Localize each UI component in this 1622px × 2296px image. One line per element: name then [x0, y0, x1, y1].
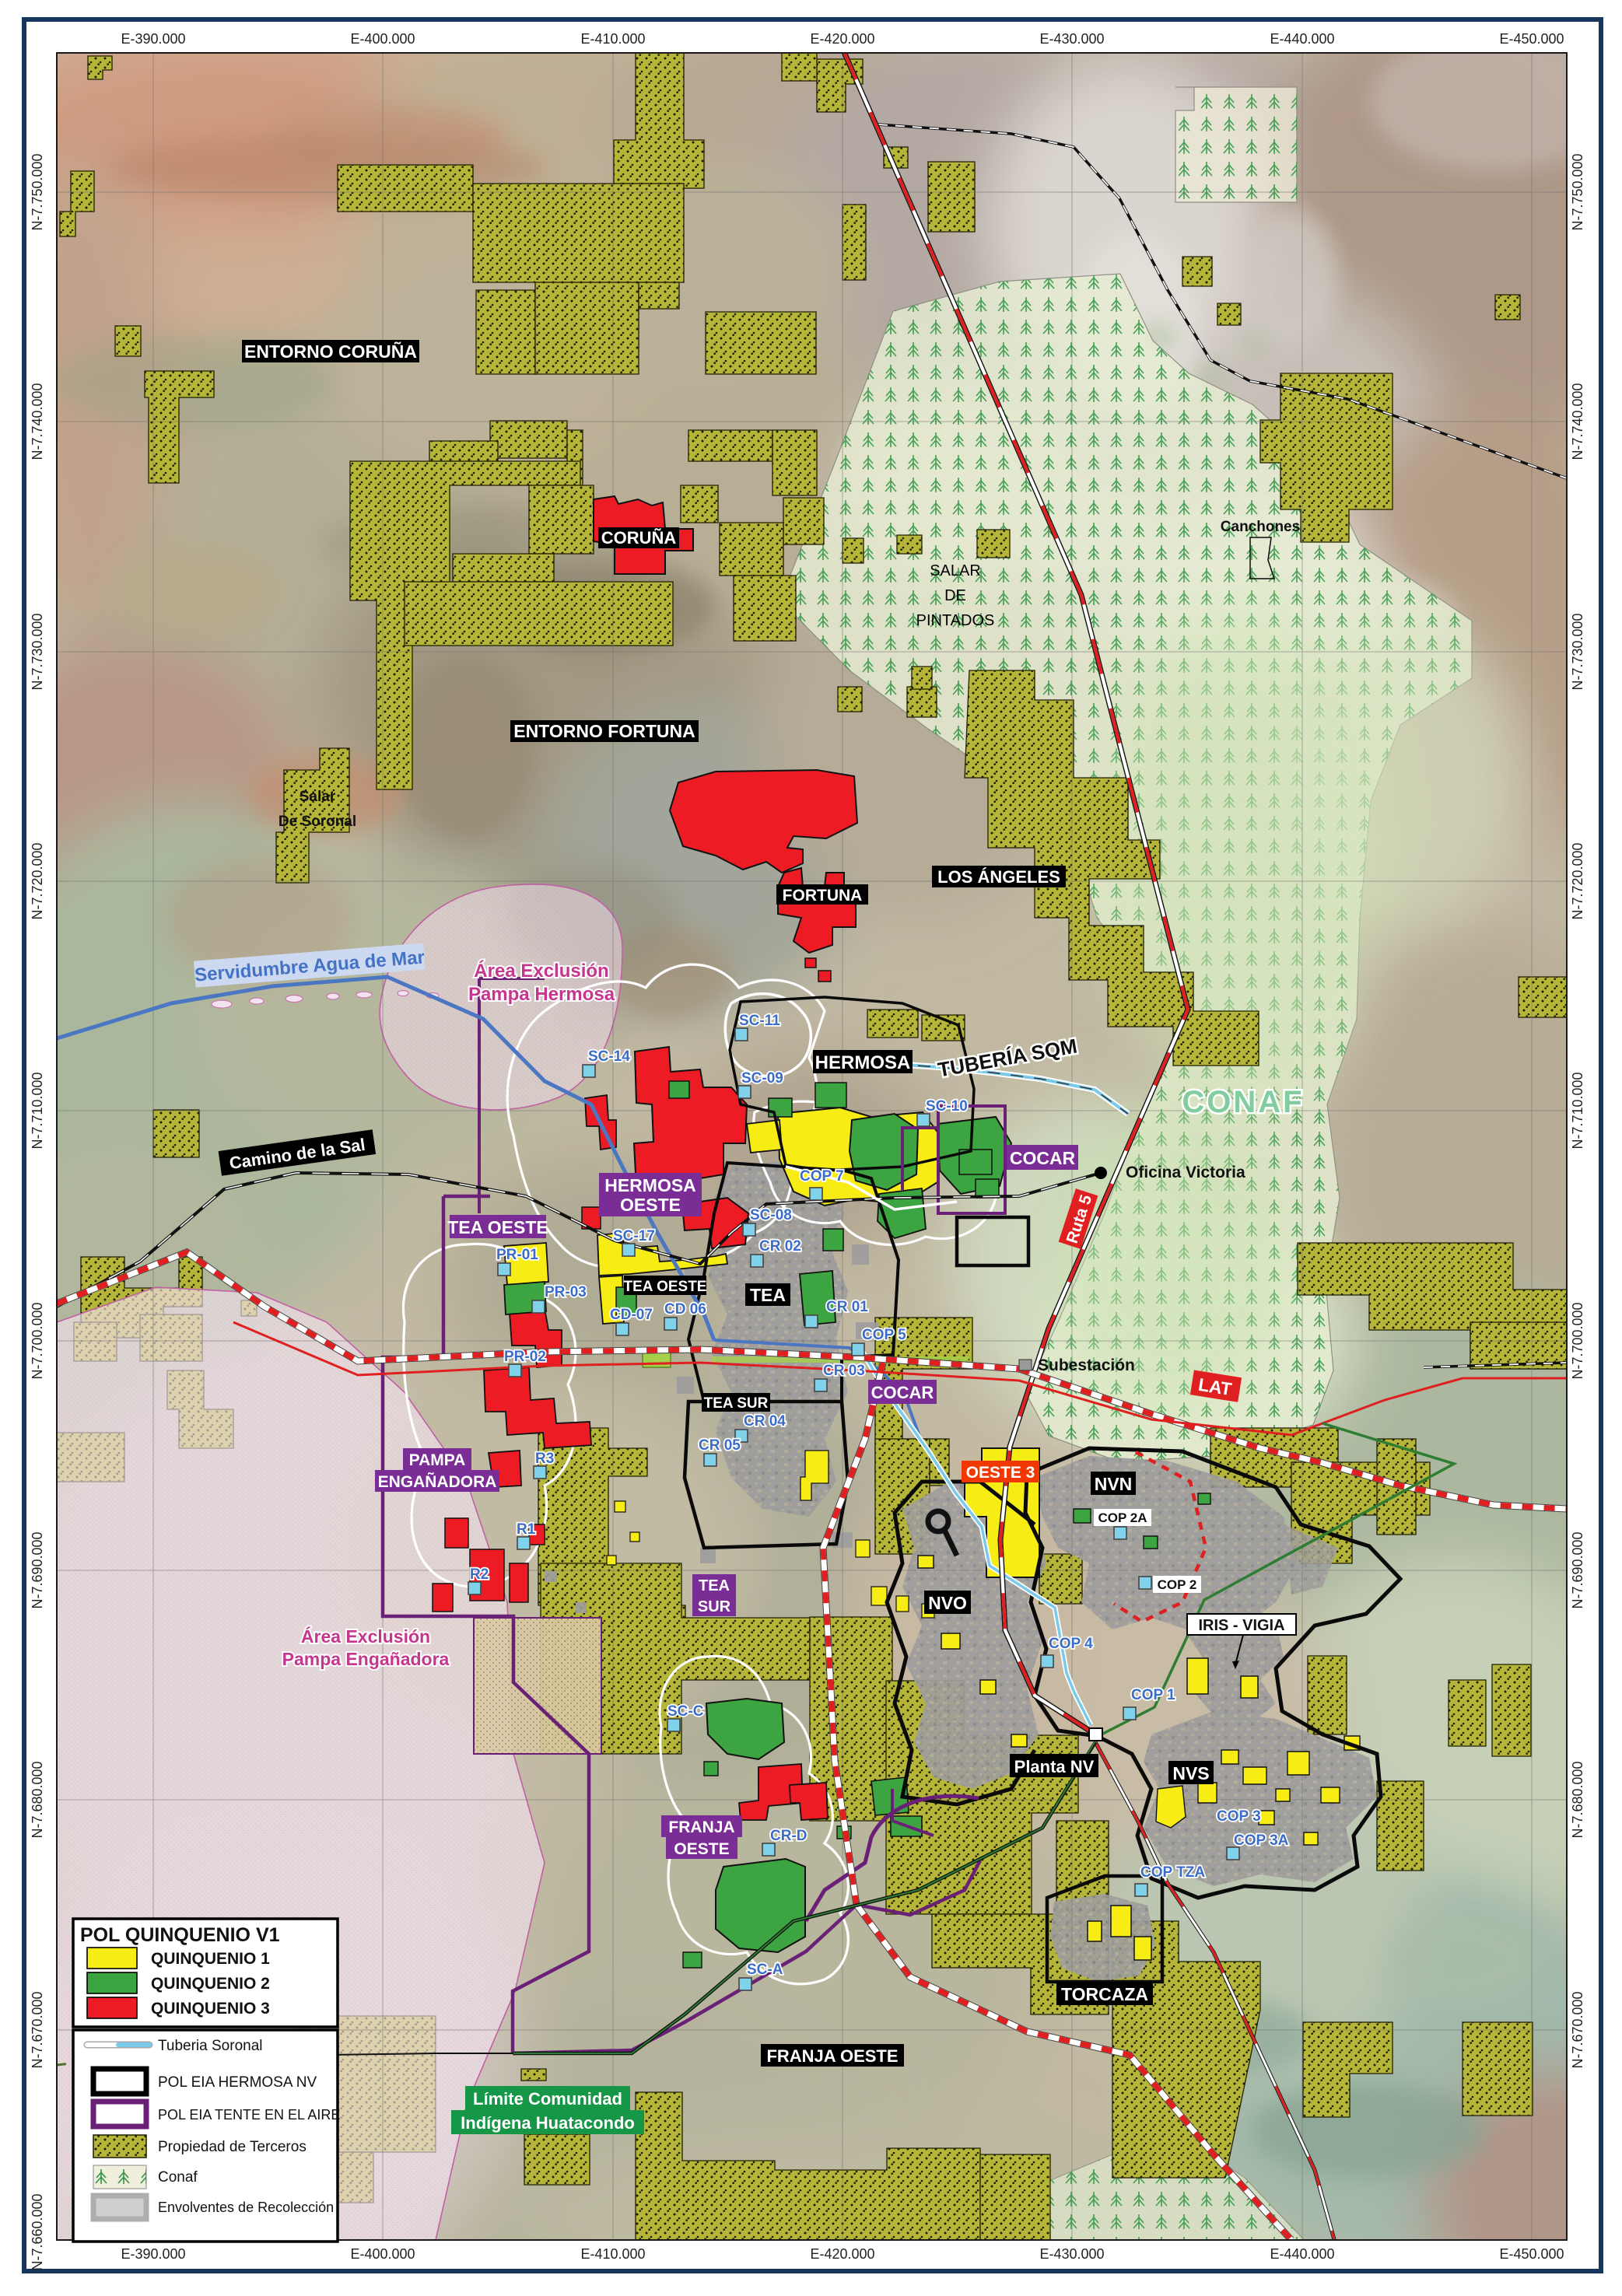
svg-text:SC-08: SC-08 [750, 1207, 792, 1223]
svg-text:POL EIA HERMOSA NV: POL EIA HERMOSA NV [158, 2074, 317, 2091]
svg-text:COP 4: COP 4 [1049, 1636, 1093, 1652]
svg-text:R2: R2 [470, 1566, 489, 1583]
svg-text:SUR: SUR [698, 1598, 731, 1615]
svg-text:COP 3A: COP 3A [1234, 1832, 1289, 1849]
svg-text:N-7.690.000: N-7.690.000 [1570, 1531, 1585, 1608]
svg-text:CR 05: CR 05 [699, 1437, 741, 1454]
svg-text:N-7.710.000: N-7.710.000 [30, 1072, 45, 1149]
svg-text:E-420.000: E-420.000 [810, 2246, 874, 2262]
svg-text:SC-A: SC-A [747, 1962, 783, 1978]
svg-text:N-7.670.000: N-7.670.000 [30, 1991, 45, 2068]
svg-text:SALAR: SALAR [930, 562, 981, 579]
svg-text:TEA OESTE: TEA OESTE [624, 1279, 707, 1295]
svg-text:N-7.730.000: N-7.730.000 [1570, 613, 1585, 690]
svg-text:Subestación: Subestación [1038, 1356, 1135, 1374]
svg-text:LOS ÁNGELES: LOS ÁNGELES [937, 867, 1060, 887]
svg-text:NVO: NVO [928, 1593, 967, 1613]
svg-text:De Soronal: De Soronal [279, 814, 356, 830]
svg-text:COP 7: COP 7 [800, 1168, 844, 1185]
svg-text:COCAR: COCAR [1010, 1148, 1076, 1168]
svg-text:FRANJA OESTE: FRANJA OESTE [766, 2046, 898, 2066]
svg-text:COCAR: COCAR [871, 1383, 934, 1402]
svg-text:TEA: TEA [699, 1577, 730, 1594]
svg-text:N-7.720.000: N-7.720.000 [1570, 842, 1585, 919]
svg-text:E-450.000: E-450.000 [1499, 2246, 1564, 2262]
svg-text:Indígena Huatacondo: Indígena Huatacondo [461, 2113, 635, 2133]
svg-text:E-390.000: E-390.000 [121, 2246, 185, 2262]
svg-text:CR 04: CR 04 [744, 1413, 786, 1430]
svg-text:E-410.000: E-410.000 [580, 2246, 645, 2262]
svg-text:CONAF: CONAF [1182, 1085, 1304, 1119]
svg-text:Pampa Engañadora: Pampa Engañadora [282, 1649, 450, 1669]
svg-text:PR-01: PR-01 [496, 1247, 538, 1263]
svg-text:N-7.660.000: N-7.660.000 [30, 2193, 45, 2270]
svg-text:E-410.000: E-410.000 [580, 31, 645, 47]
svg-text:CR-D: CR-D [770, 1828, 807, 1844]
svg-text:PR-02: PR-02 [504, 1349, 546, 1365]
svg-text:FRANJA: FRANJA [668, 1818, 734, 1836]
svg-text:ENTORNO FORTUNA: ENTORNO FORTUNA [513, 721, 695, 741]
svg-text:QUINQUENIO 1: QUINQUENIO 1 [151, 1950, 270, 1968]
svg-text:HERMOSA: HERMOSA [815, 1052, 911, 1073]
svg-text:SC-09: SC-09 [741, 1070, 783, 1087]
svg-text:COP TZA: COP TZA [1140, 1864, 1205, 1881]
svg-text:E-390.000: E-390.000 [121, 31, 185, 47]
svg-text:Canchones: Canchones [1221, 519, 1300, 535]
svg-text:N-7.690.000: N-7.690.000 [30, 1531, 45, 1608]
svg-text:Envolventes de Recolección: Envolventes de Recolección [158, 2200, 334, 2215]
svg-text:TEA OESTE: TEA OESTE [447, 1217, 548, 1237]
svg-text:ENTORNO CORUÑA: ENTORNO CORUÑA [244, 341, 417, 362]
svg-text:QUINQUENIO 3: QUINQUENIO 3 [151, 2000, 270, 2018]
svg-text:Área Exclusión: Área Exclusión [474, 960, 608, 982]
svg-text:Área Exclusión: Área Exclusión [301, 1626, 430, 1647]
svg-text:N-7.730.000: N-7.730.000 [30, 613, 45, 690]
svg-text:DE: DE [944, 587, 966, 604]
svg-text:N-7.740.000: N-7.740.000 [1570, 383, 1585, 460]
svg-text:CORUÑA: CORUÑA [601, 528, 677, 548]
svg-text:TORCAZA: TORCAZA [1061, 1984, 1148, 2004]
svg-text:E-420.000: E-420.000 [810, 31, 874, 47]
svg-text:COP 1: COP 1 [1131, 1687, 1175, 1703]
svg-text:POL QUINQUENIO V1: POL QUINQUENIO V1 [80, 1924, 280, 1946]
svg-text:IRIS - VIGIA: IRIS - VIGIA [1198, 1617, 1284, 1634]
svg-text:SC-14: SC-14 [588, 1048, 630, 1065]
svg-text:N-7.680.000: N-7.680.000 [1570, 1761, 1585, 1838]
svg-text:COP 5: COP 5 [862, 1327, 906, 1343]
svg-text:N-7.740.000: N-7.740.000 [30, 383, 45, 460]
svg-text:N-7.750.000: N-7.750.000 [30, 153, 45, 230]
svg-text:E-450.000: E-450.000 [1499, 31, 1564, 47]
svg-text:N-7.670.000: N-7.670.000 [1570, 1991, 1585, 2068]
svg-text:N-7.700.000: N-7.700.000 [30, 1302, 45, 1379]
svg-text:COP 3: COP 3 [1217, 1808, 1261, 1825]
svg-text:Planta NV: Planta NV [1014, 1757, 1095, 1776]
svg-text:CR 02: CR 02 [759, 1238, 801, 1255]
svg-text:N-7.700.000: N-7.700.000 [1570, 1302, 1585, 1379]
svg-text:E-430.000: E-430.000 [1039, 2246, 1104, 2262]
svg-text:E-400.000: E-400.000 [350, 31, 415, 47]
svg-text:E-440.000: E-440.000 [1270, 31, 1334, 47]
svg-text:E-440.000: E-440.000 [1270, 2246, 1334, 2262]
svg-text:N-7.680.000: N-7.680.000 [30, 1761, 45, 1838]
svg-text:OESTE: OESTE [620, 1195, 681, 1215]
svg-text:ENGAÑADORA: ENGAÑADORA [378, 1473, 497, 1491]
svg-text:SC-10: SC-10 [926, 1098, 968, 1115]
svg-text:NVN: NVN [1095, 1474, 1133, 1494]
svg-text:Pampa Hermosa: Pampa Hermosa [468, 984, 615, 1005]
svg-text:Salar: Salar [300, 789, 336, 805]
svg-text:N-7.720.000: N-7.720.000 [30, 842, 45, 919]
svg-text:Tuberia Soronal: Tuberia Soronal [158, 2038, 262, 2054]
svg-text:QUINQUENIO 2: QUINQUENIO 2 [151, 1975, 270, 1993]
svg-text:E-430.000: E-430.000 [1039, 31, 1104, 47]
svg-text:CR 03: CR 03 [823, 1363, 865, 1379]
svg-text:E-400.000: E-400.000 [350, 2246, 415, 2262]
svg-text:CR 01: CR 01 [826, 1299, 868, 1315]
svg-text:TEA: TEA [750, 1285, 786, 1305]
svg-text:Límite Comunidad: Límite Comunidad [473, 2089, 622, 2109]
svg-text:Oficina Victoria: Oficina Victoria [1126, 1164, 1245, 1181]
svg-text:CD-07: CD-07 [610, 1307, 653, 1323]
svg-text:R1: R1 [517, 1521, 536, 1538]
svg-text:HERMOSA: HERMOSA [604, 1175, 696, 1195]
svg-text:Conaf: Conaf [158, 2169, 198, 2186]
svg-text:FORTUNA: FORTUNA [783, 887, 863, 905]
svg-text:OESTE 3: OESTE 3 [966, 1464, 1035, 1482]
svg-text:POL EIA TENTE EN EL AIRE: POL EIA TENTE EN EL AIRE [158, 2107, 340, 2123]
svg-text:PR-03: PR-03 [545, 1284, 587, 1300]
svg-text:PINTADOS: PINTADOS [916, 612, 995, 629]
svg-text:NVS: NVS [1172, 1763, 1209, 1783]
svg-text:Propiedad de Terceros: Propiedad de Terceros [158, 2139, 307, 2155]
svg-text:CD 06: CD 06 [664, 1301, 706, 1318]
svg-text:TEA SUR: TEA SUR [704, 1395, 769, 1412]
svg-text:COP 2A: COP 2A [1098, 1510, 1147, 1525]
svg-text:PAMPA: PAMPA [409, 1451, 466, 1469]
svg-text:OESTE: OESTE [674, 1840, 729, 1858]
svg-text:SC-17: SC-17 [613, 1228, 655, 1244]
svg-text:COP 2: COP 2 [1158, 1577, 1197, 1592]
svg-text:SC-C: SC-C [667, 1703, 704, 1720]
svg-text:N-7.750.000: N-7.750.000 [1570, 153, 1585, 230]
svg-text:SC-11: SC-11 [739, 1013, 780, 1029]
svg-text:R3: R3 [535, 1451, 554, 1467]
svg-text:N-7.710.000: N-7.710.000 [1570, 1072, 1585, 1149]
